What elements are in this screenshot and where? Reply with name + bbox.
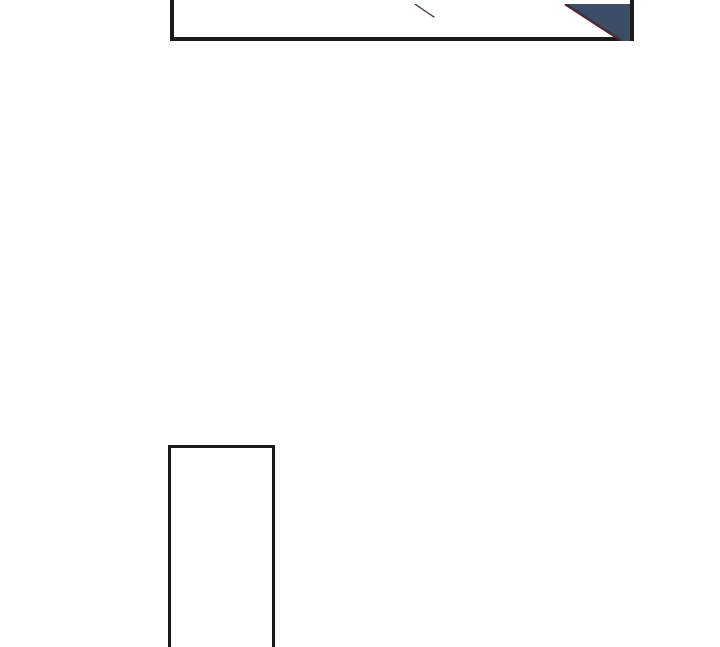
comic-page — [0, 0, 720, 647]
sketch-line — [415, 4, 434, 17]
comic-panel-bottom — [168, 445, 275, 647]
panel-top-artwork — [174, 4, 630, 41]
comic-panel-top — [170, 0, 634, 41]
